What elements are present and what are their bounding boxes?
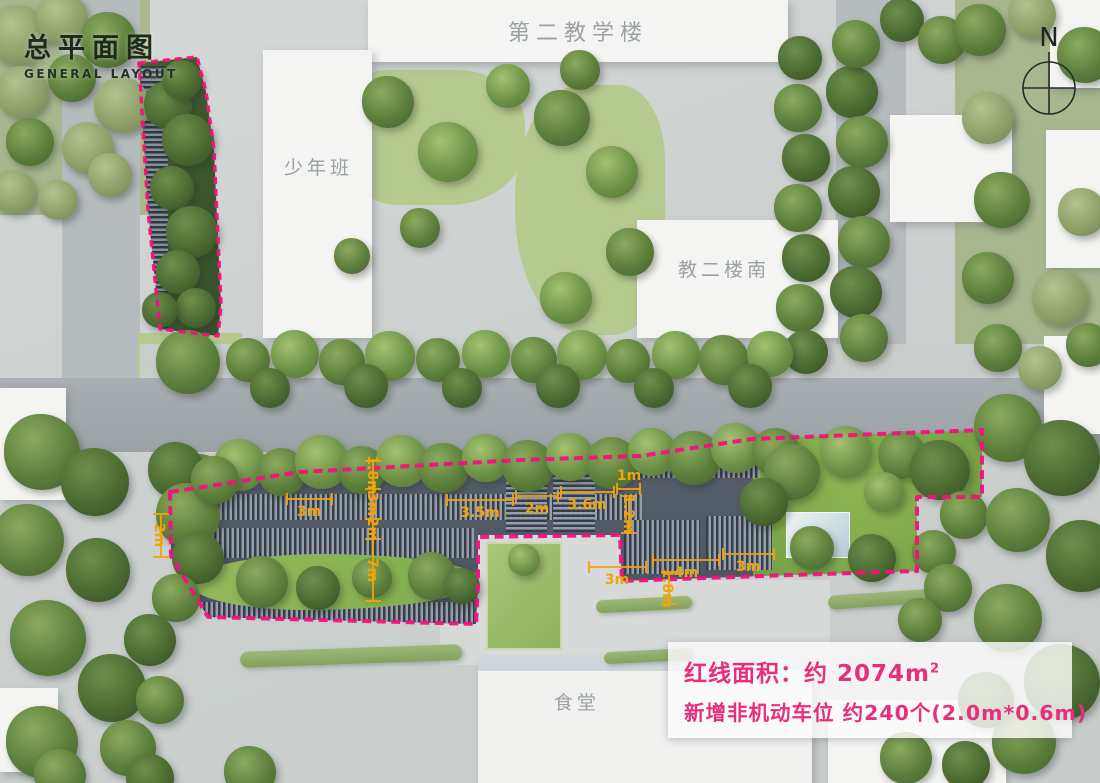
title-english: GENERAL LAYOUT: [24, 67, 178, 81]
building-label-teaching2: 第二教学楼: [368, 15, 788, 47]
building-label-youth-class: 少年班: [284, 153, 353, 180]
building-label-canteen: 食堂: [554, 688, 600, 715]
title-chinese: 总平面图: [24, 26, 178, 65]
red-line-area-text: 红线面积：约 2074m2: [684, 654, 1056, 688]
site-plan: 2m 3m 1.8m 3m 2m 7m 3.5m 2m 3.6m: [0, 0, 1100, 783]
drawing-title: 总平面图 GENERAL LAYOUT: [24, 26, 178, 81]
building-label-teaching2-south: 教二楼南: [678, 255, 770, 282]
red-line-info-box: 红线面积：约 2074m2 新增非机动车位 约240个(2.0m*0.6m): [668, 642, 1072, 738]
new-parking-spots-text: 新增非机动车位 约240个(2.0m*0.6m): [684, 696, 1056, 726]
